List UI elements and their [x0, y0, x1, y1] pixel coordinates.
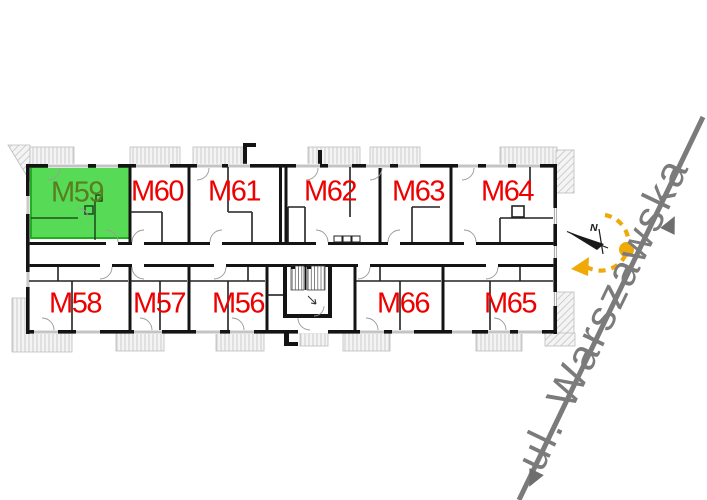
apartment-label-m64[interactable]: M64 — [465, 178, 549, 207]
apartment-label-m60[interactable]: M60 — [115, 178, 199, 207]
apartment-label-m57[interactable]: M57 — [117, 290, 201, 319]
apartment-label-m58[interactable]: M58 — [33, 290, 117, 319]
apartment-label-m61[interactable]: M61 — [192, 178, 276, 207]
apartment-label-m66[interactable]: M66 — [361, 290, 445, 319]
entry-arrow — [308, 296, 316, 304]
stair-flight — [291, 266, 304, 290]
north-label: N — [590, 222, 598, 234]
corridor-door-gaps — [100, 242, 498, 267]
corridor-walls — [30, 242, 554, 267]
floorplan-canvas: N M59 M60 M61 M62 M63 M64 M58 M57 M56 M6… — [0, 0, 707, 500]
apartment-label-m65[interactable]: M65 — [468, 290, 552, 319]
entrance-steps — [300, 333, 328, 346]
apartment-label-m59[interactable]: M59 — [35, 179, 119, 208]
corridor-fixtures — [334, 236, 360, 242]
stair-flight — [307, 266, 325, 290]
arc-arrowhead — [571, 257, 589, 276]
apartment-label-m56[interactable]: M56 — [196, 290, 280, 319]
floorplan-drawing: N — [0, 0, 707, 500]
apartment-label-m63[interactable]: M63 — [376, 178, 460, 207]
apartment-label-m62[interactable]: M62 — [288, 178, 372, 207]
